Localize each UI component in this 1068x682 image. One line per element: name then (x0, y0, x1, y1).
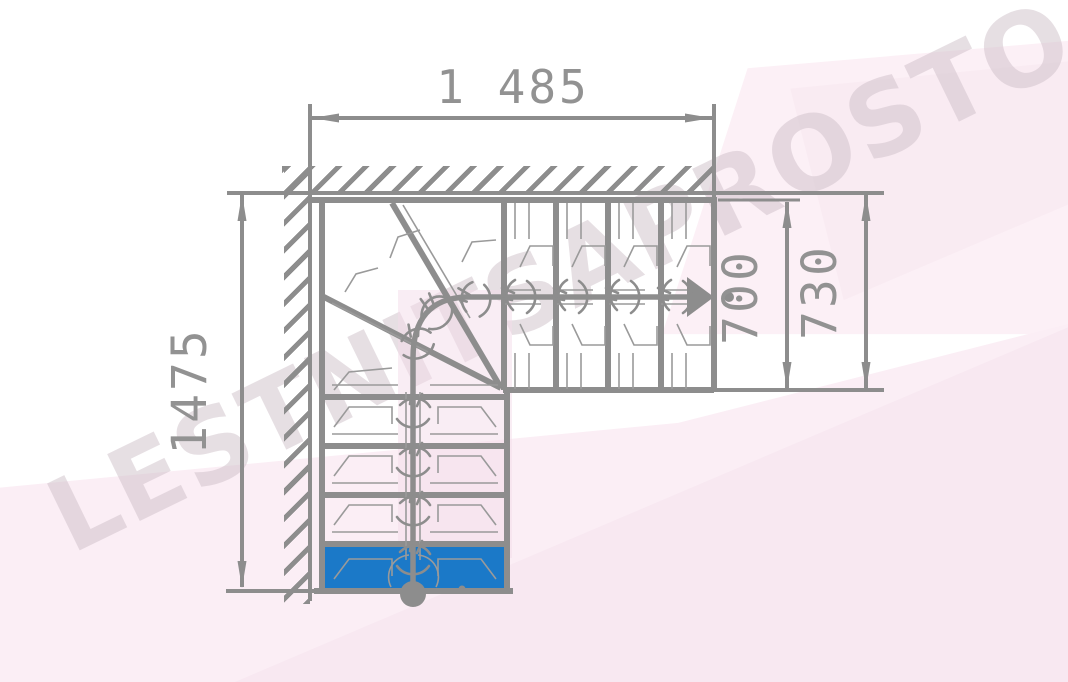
dim-arrow-down-icon (783, 362, 792, 389)
tread-outline (334, 456, 392, 476)
dim-arrow-right-icon (685, 114, 712, 123)
dim-arrow-left-icon (312, 114, 339, 123)
dim-arrow-up-icon (862, 194, 871, 221)
tread-outline (677, 246, 710, 267)
winder-outline (345, 268, 378, 292)
dimension-left-label: 1475 (162, 327, 218, 455)
tread-outline (624, 246, 657, 267)
walk-detail-dot (459, 586, 466, 593)
dim-arrow-up-icon (783, 201, 792, 228)
walk-start-marker (400, 581, 426, 607)
dimension-730: 730 (792, 194, 871, 389)
dimension-top-label: 1 485 (436, 60, 589, 114)
tread-outline (572, 246, 605, 267)
tread-outline (572, 324, 605, 345)
dim-arrow-up-icon (238, 194, 247, 221)
tread-outline (677, 324, 710, 345)
dim-arrow-down-icon (238, 561, 247, 588)
winder-outline (462, 240, 496, 262)
tread-outline (334, 407, 392, 427)
stair-plan-svg: 1 485 1475 700 730 (0, 0, 1068, 682)
tread-outline (520, 324, 553, 345)
dim-arrow-down-icon (862, 362, 871, 389)
tread-outline (624, 324, 657, 345)
tread-outline (520, 246, 553, 267)
winder-outline (334, 368, 392, 390)
dimension-700: 700 (713, 201, 792, 389)
dimension-top: 1 485 (310, 60, 714, 123)
dimension-left: 1475 (162, 194, 316, 591)
dimension-700-label: 700 (713, 249, 769, 345)
tread-outline (334, 505, 392, 525)
stair-plan-drawing: LESTNITSAPROSTO.RU (0, 0, 1068, 682)
dimension-730-label: 730 (792, 244, 848, 340)
